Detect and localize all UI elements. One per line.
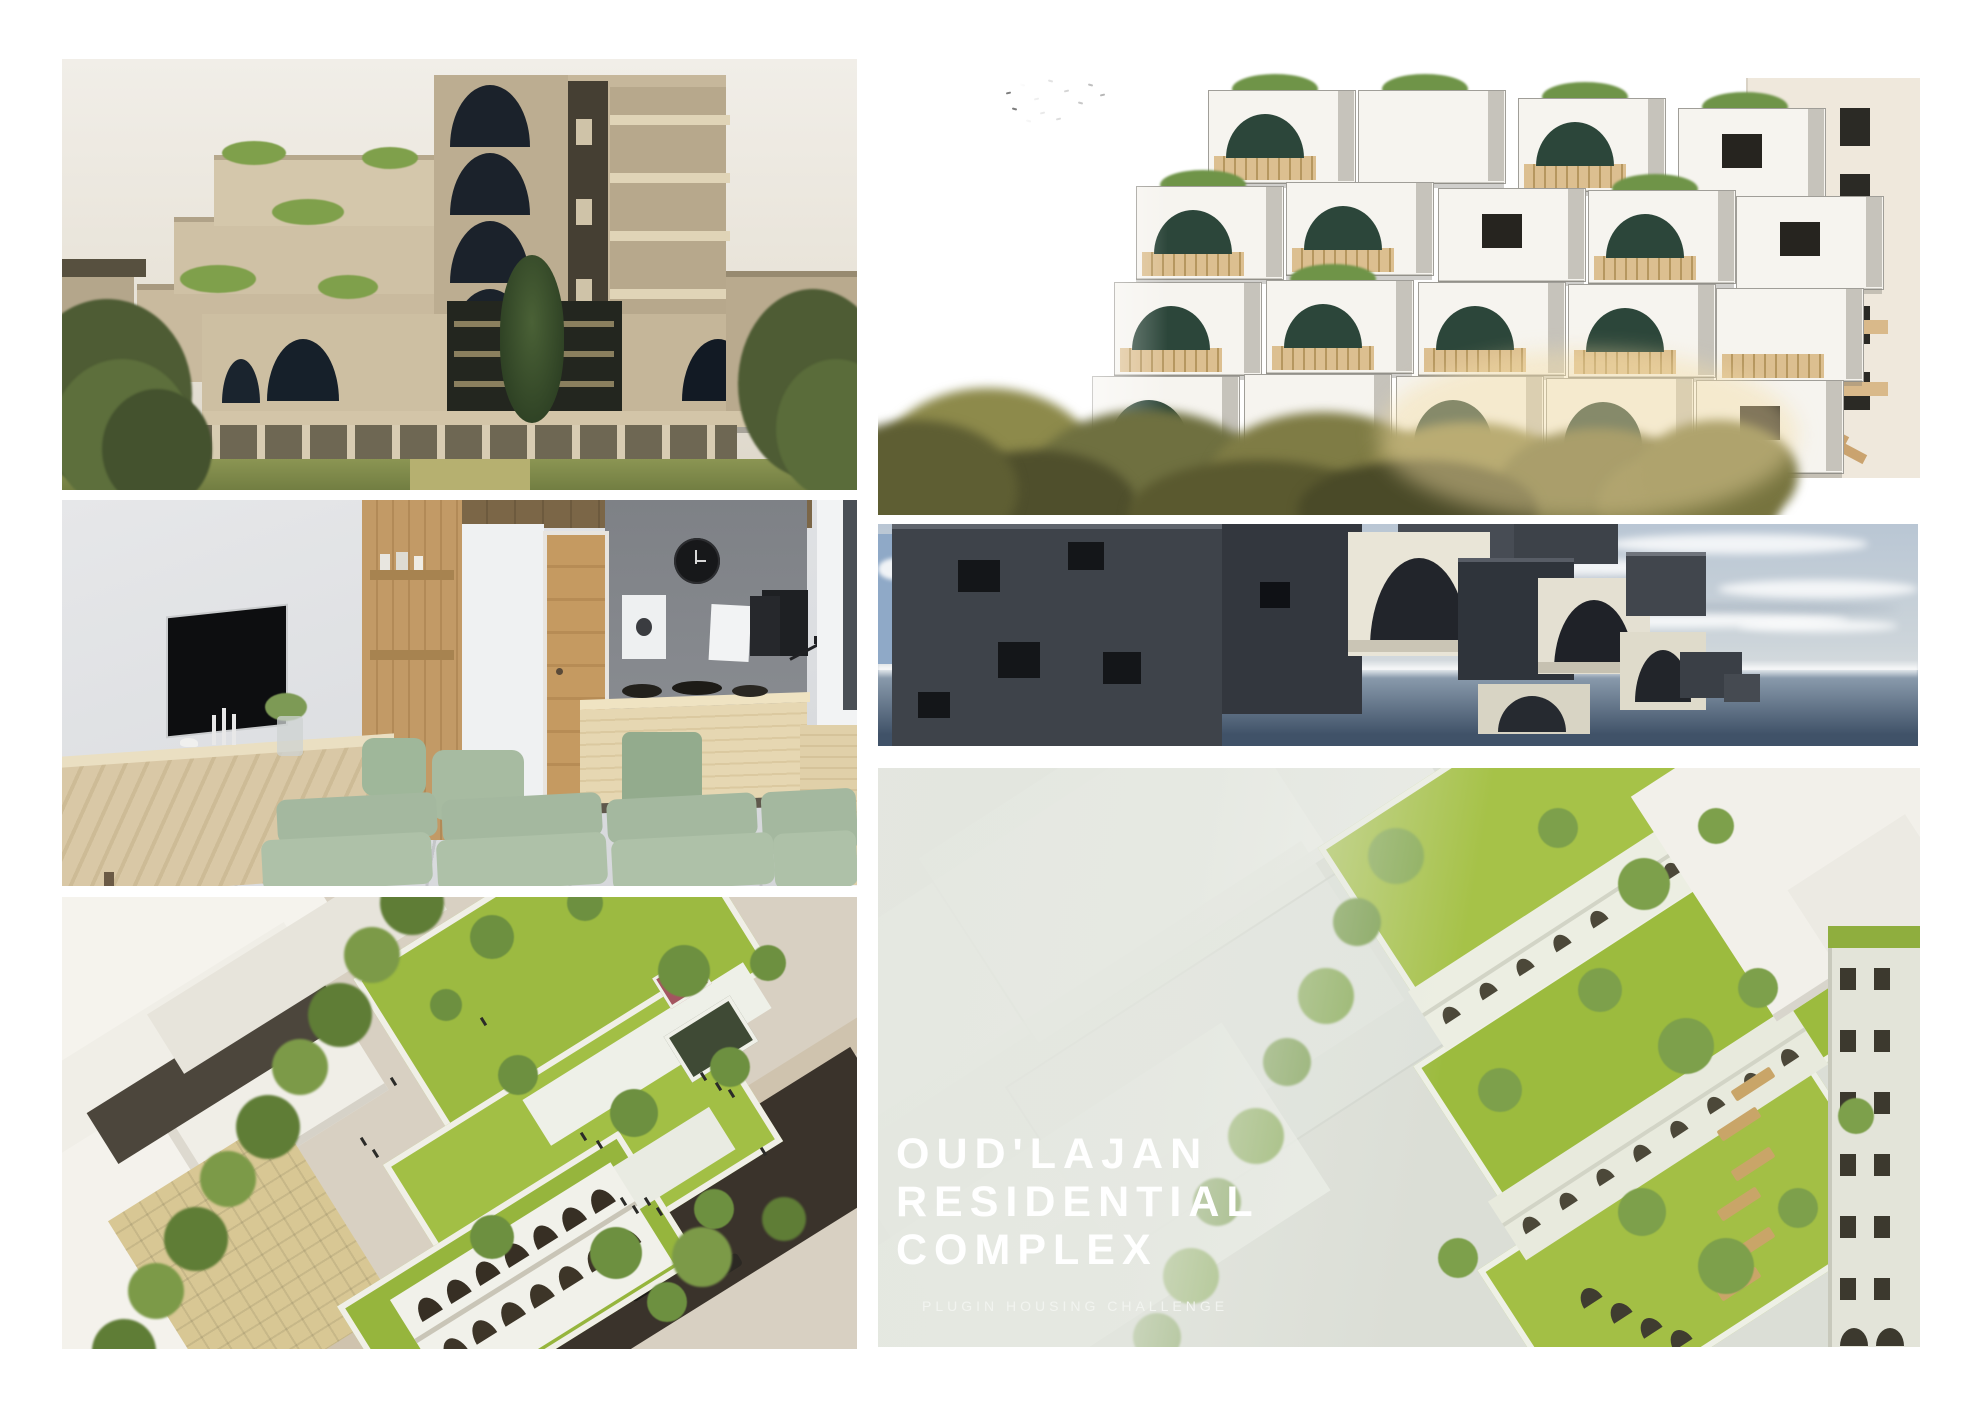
- balcony-slab: [610, 115, 730, 125]
- poster-black: [750, 596, 780, 656]
- shelf-jar: [414, 556, 423, 570]
- bird: [1006, 92, 1011, 95]
- roof-tree: [430, 989, 462, 1021]
- bird: [1012, 107, 1017, 110]
- sofa-cushion: [773, 830, 857, 886]
- context-window: [1840, 108, 1870, 146]
- bird-figurine: [180, 738, 198, 747]
- terrace-shrub: [180, 265, 256, 293]
- window: [1780, 222, 1820, 256]
- counter-object: [732, 685, 768, 697]
- project-title-line-3: COMPLEX: [896, 1226, 1260, 1274]
- candle: [232, 714, 236, 745]
- street-tree: [128, 1263, 184, 1319]
- cloud: [1718, 580, 1918, 598]
- roof-tree: [694, 1189, 734, 1229]
- window: [1068, 542, 1104, 570]
- collage-page: OUD'LAJAN RESIDENTIAL COMPLEX PLUGIN HOU…: [0, 0, 1976, 1404]
- roof-tree: [470, 915, 514, 959]
- terrace-shrub: [222, 141, 286, 165]
- facade-arch: [585, 1184, 616, 1214]
- path: [410, 459, 530, 490]
- cloud: [1738, 620, 1898, 632]
- candle: [212, 715, 216, 745]
- street-tree: [344, 927, 400, 983]
- sofa-cushion: [611, 832, 775, 886]
- cloud: [1608, 534, 1868, 554]
- dark-modules-sea-render: [878, 524, 1918, 746]
- facade-arch: [553, 1261, 584, 1291]
- balcony-slab: [610, 231, 730, 241]
- roof-tree: [750, 945, 786, 981]
- module-shade: [1846, 289, 1862, 379]
- slot-window: [576, 199, 592, 225]
- pinned-paper: [709, 604, 752, 662]
- dark-window: [843, 500, 857, 710]
- slot-window: [576, 119, 592, 145]
- person-figure: [390, 1077, 397, 1086]
- street-tree: [672, 1227, 732, 1287]
- facade-arch: [441, 1274, 472, 1304]
- courtyard-stilts-render: [62, 59, 857, 490]
- facade-arch: [437, 1333, 468, 1349]
- warm-glow: [1378, 350, 1798, 515]
- sideboard-leg: [104, 872, 114, 886]
- terrace-shrub: [362, 147, 418, 169]
- project-title-line-1: OUD'LAJAN: [896, 1130, 1260, 1178]
- module-shade: [1338, 91, 1354, 181]
- cypress-tree: [500, 255, 564, 423]
- tv-screen: [168, 606, 286, 736]
- module-shade: [1826, 381, 1842, 471]
- module-shade: [1416, 183, 1432, 273]
- roof-tree: [498, 1055, 538, 1095]
- roof-tree: [658, 945, 710, 997]
- unit-shelf: [370, 570, 454, 580]
- module-box: [1358, 90, 1506, 184]
- sofa-cushion: [261, 832, 433, 886]
- context-roof: [62, 259, 146, 277]
- roof-tree: [710, 1047, 750, 1087]
- balcony-front: [1272, 346, 1374, 370]
- poster-motif: [636, 618, 652, 636]
- aerial-green-roof-render: [62, 897, 857, 1349]
- window: [998, 642, 1040, 678]
- roof-tree: [647, 1282, 687, 1322]
- balcony-front: [1524, 164, 1626, 188]
- roof-tree: [590, 1227, 642, 1279]
- apartment-interior-render: [62, 500, 857, 886]
- facade-arch: [527, 1220, 558, 1250]
- green-pouf: [362, 738, 426, 796]
- shelf-jar: [380, 554, 390, 570]
- balcony-front: [1594, 256, 1696, 280]
- hero-aerial-masterplan-render: OUD'LAJAN RESIDENTIAL COMPLEX PLUGIN HOU…: [878, 768, 1920, 1347]
- module-shade: [1808, 109, 1824, 199]
- counter-object: [672, 681, 722, 695]
- window: [1103, 652, 1141, 684]
- facade-arch: [412, 1292, 443, 1322]
- street-tree: [164, 1207, 228, 1271]
- roof-tree: [610, 1089, 658, 1137]
- module-shade: [1244, 283, 1260, 373]
- terrace-shrub: [272, 199, 344, 225]
- tree: [102, 389, 212, 490]
- street-tree: [762, 1197, 806, 1241]
- dark-block: [1222, 524, 1362, 714]
- facade-arch: [556, 1202, 587, 1232]
- clock-hand: [696, 560, 706, 562]
- project-subtitle: PLUGIN HOUSING CHALLENGE: [922, 1298, 1260, 1314]
- sofa-cushion: [436, 832, 608, 886]
- candle: [222, 708, 226, 745]
- window: [1260, 582, 1290, 608]
- person-figure: [360, 1137, 367, 1146]
- window: [918, 692, 950, 718]
- glass-vase: [277, 716, 303, 756]
- street-tree: [236, 1095, 300, 1159]
- street-tree: [272, 1039, 328, 1095]
- facade-arch: [470, 1256, 501, 1286]
- dark-block: [1724, 674, 1760, 702]
- unit-shelf: [370, 650, 454, 660]
- window: [1482, 214, 1522, 248]
- module-shade: [1718, 191, 1734, 281]
- project-title-line-2: RESIDENTIAL: [896, 1178, 1260, 1226]
- dark-block: [1626, 552, 1706, 616]
- counter-object: [622, 684, 662, 698]
- terrace-shrub: [318, 275, 378, 299]
- module-shade: [1698, 285, 1714, 375]
- module-shade: [1488, 91, 1504, 181]
- window: [958, 560, 1000, 592]
- facade-arch: [524, 1279, 555, 1309]
- white-modular-balconies-render: [878, 20, 1920, 515]
- project-title-block: OUD'LAJAN RESIDENTIAL COMPLEX PLUGIN HOU…: [896, 1130, 1260, 1314]
- module-shade: [1396, 281, 1412, 371]
- facade-arch: [495, 1297, 526, 1327]
- door-handle: [556, 668, 563, 675]
- person-figure: [372, 1149, 379, 1158]
- balcony-slab: [610, 173, 730, 183]
- street-tree: [308, 983, 372, 1047]
- module-shade: [1266, 187, 1282, 277]
- shelf-jar: [396, 552, 408, 570]
- facade-arch: [466, 1315, 497, 1345]
- module-shade: [1866, 197, 1882, 287]
- module-shade: [1568, 189, 1584, 279]
- window: [1722, 134, 1762, 168]
- roof-tree: [470, 1215, 514, 1259]
- balcony-slab: [610, 289, 730, 299]
- street-tree: [200, 1151, 256, 1207]
